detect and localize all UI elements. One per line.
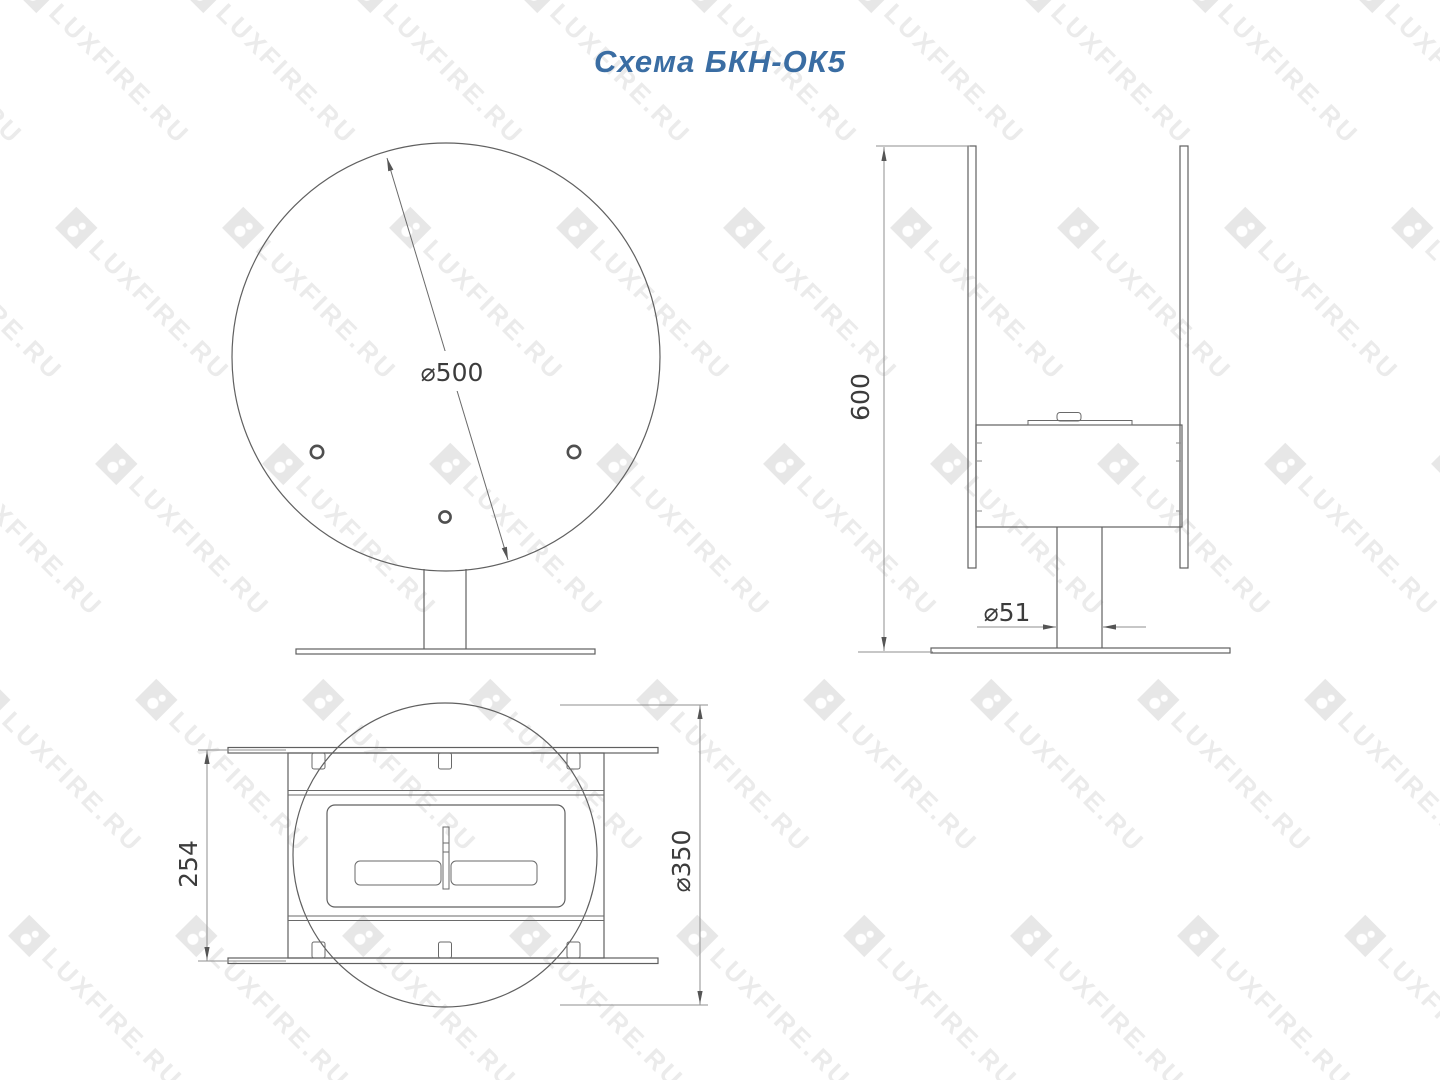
burner-plate	[327, 805, 565, 907]
dim-label-column-51: ⌀51	[984, 598, 1031, 627]
slider-handle	[443, 827, 449, 889]
fastener-ticks	[977, 443, 1181, 511]
burner-slot-right	[451, 861, 537, 885]
dim-label-base-350: ⌀350	[667, 830, 696, 893]
dim-arrow	[1103, 624, 1116, 629]
lid-cap	[1057, 413, 1081, 422]
glass-panel-bottom	[228, 958, 658, 964]
base-plate	[931, 648, 1230, 653]
dim-arrow	[697, 706, 702, 719]
page-title: Схема БКН-ОК5	[0, 44, 1440, 80]
mount-hole	[568, 446, 580, 458]
diameter-arrow-bottom	[502, 547, 508, 560]
burner-slot-left	[355, 861, 441, 885]
dim-arrow	[697, 991, 702, 1004]
dim-label-depth-254: 254	[174, 840, 203, 888]
dim-arrow	[1043, 624, 1056, 629]
top-view: 254 ⌀350	[174, 703, 708, 1007]
dim-arrow	[204, 751, 209, 764]
technical-drawing: ⌀500 600 ⌀51	[0, 0, 1440, 1080]
burner-body	[288, 753, 604, 958]
glass-clips	[312, 753, 580, 958]
glass-panel-top	[228, 748, 658, 754]
mount-hole	[311, 446, 323, 458]
dim-arrow	[204, 947, 209, 960]
burner-box	[976, 425, 1182, 527]
base-plate	[296, 649, 595, 654]
front-view: ⌀500	[232, 143, 660, 654]
diameter-arrow-top	[387, 158, 393, 171]
glass-panel-right	[1180, 146, 1188, 568]
dim-arrow	[881, 148, 886, 161]
mount-hole	[439, 511, 450, 522]
dim-label-diameter-500: ⌀500	[421, 358, 484, 387]
dim-label-height-600: 600	[846, 373, 875, 421]
glass-panel-left	[968, 146, 976, 568]
dim-arrow	[881, 637, 886, 650]
burner-lid	[1028, 421, 1132, 426]
base-plate-outline	[293, 703, 597, 1007]
side-view: 600 ⌀51	[846, 146, 1230, 653]
